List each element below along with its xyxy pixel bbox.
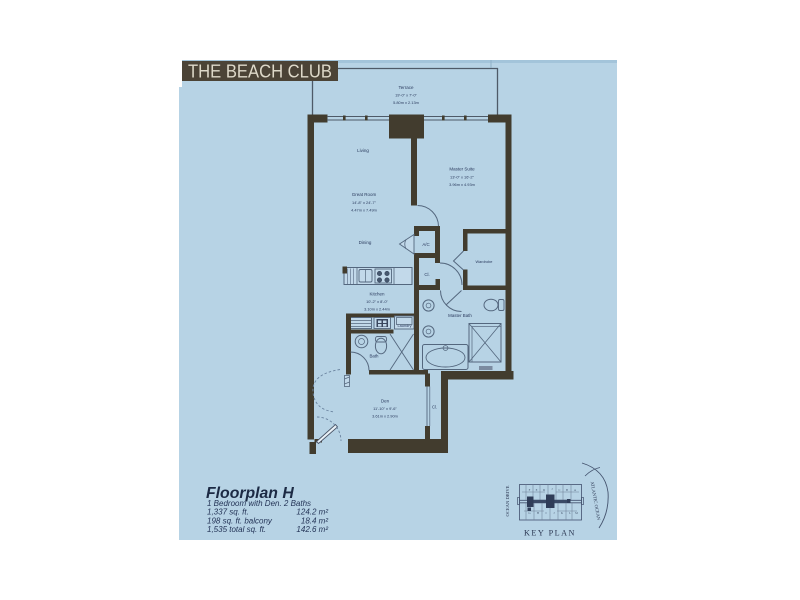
svg-text:Cl.: Cl. bbox=[424, 272, 429, 277]
svg-text:13'-0" x 16'-2": 13'-0" x 16'-2" bbox=[450, 175, 475, 180]
svg-text:C: C bbox=[558, 488, 560, 492]
svg-text:3.10m x 2.44m: 3.10m x 2.44m bbox=[364, 307, 390, 312]
svg-text:Wardrobe: Wardrobe bbox=[476, 259, 493, 264]
svg-text:THE BEACH CLUB: THE BEACH CLUB bbox=[188, 62, 332, 82]
svg-text:1,535 total sq. ft.: 1,535 total sq. ft. bbox=[207, 525, 266, 534]
svg-text:14'-8" x 24'-7": 14'-8" x 24'-7" bbox=[352, 200, 377, 205]
svg-text:4.47m x 7.49m: 4.47m x 7.49m bbox=[351, 208, 377, 213]
svg-text:L: L bbox=[569, 511, 571, 515]
svg-text:OCEAN DRIVE: OCEAN DRIVE bbox=[505, 485, 510, 516]
svg-text:Terrace: Terrace bbox=[398, 85, 414, 90]
svg-text:Dining: Dining bbox=[359, 240, 372, 245]
svg-text:3.61m x 2.90m: 3.61m x 2.90m bbox=[372, 414, 398, 419]
svg-text:19'-0" x 7'-0": 19'-0" x 7'-0" bbox=[395, 93, 417, 98]
svg-text:Kitchen: Kitchen bbox=[369, 292, 385, 297]
svg-text:Cl.: Cl. bbox=[432, 405, 437, 410]
svg-text:Master Suite: Master Suite bbox=[449, 167, 475, 172]
svg-text:Master Bath: Master Bath bbox=[448, 313, 472, 318]
svg-text:11'-10" x 9'-6": 11'-10" x 9'-6" bbox=[373, 406, 397, 411]
svg-text:KEY PLAN: KEY PLAN bbox=[524, 529, 576, 538]
svg-text:Living: Living bbox=[357, 148, 369, 153]
svg-text:1,337 sq. ft.: 1,337 sq. ft. bbox=[207, 508, 249, 517]
svg-text:124.2 m²: 124.2 m² bbox=[296, 508, 328, 517]
svg-text:3.96m x 4.93m: 3.96m x 4.93m bbox=[449, 182, 475, 187]
svg-text:Bath: Bath bbox=[369, 354, 379, 359]
svg-text:198 sq. ft. balcony: 198 sq. ft. balcony bbox=[207, 516, 273, 525]
svg-text:M: M bbox=[575, 511, 578, 515]
svg-text:B: B bbox=[566, 488, 568, 492]
svg-text:I: I bbox=[546, 511, 547, 515]
svg-text:10'-2" x 8'-0": 10'-2" x 8'-0" bbox=[366, 299, 388, 304]
svg-text:18.4 m²: 18.4 m² bbox=[301, 516, 328, 525]
svg-text:Great Room: Great Room bbox=[352, 192, 377, 197]
svg-text:142.6 m²: 142.6 m² bbox=[296, 525, 328, 534]
svg-text:A/C: A/C bbox=[422, 242, 429, 247]
svg-text:Den: Den bbox=[381, 399, 390, 404]
svg-text:Laundry: Laundry bbox=[397, 323, 411, 328]
svg-text:E: E bbox=[536, 488, 538, 492]
svg-text:5.80m x 2.13m: 5.80m x 2.13m bbox=[393, 100, 419, 105]
svg-text:1 Bedroom with Den. 2 Baths: 1 Bedroom with Den. 2 Baths bbox=[207, 499, 311, 508]
